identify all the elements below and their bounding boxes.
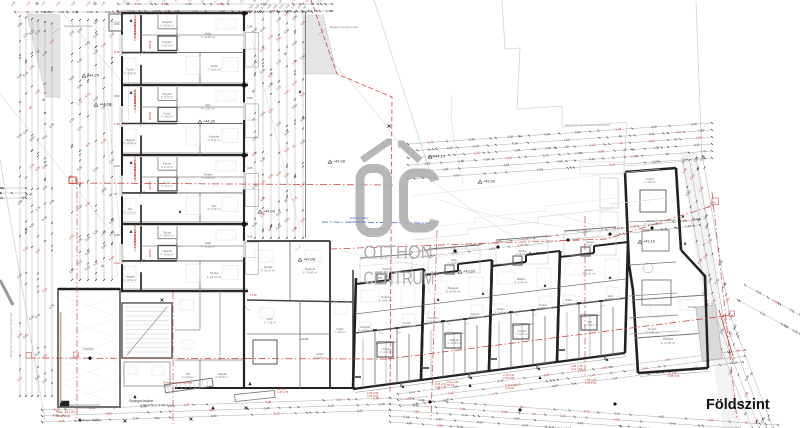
svg-text:1,85: 1,85 — [460, 407, 466, 411]
svg-text:1,38: 1,38 — [698, 128, 704, 132]
svg-text:5,40: 5,40 — [700, 149, 706, 153]
svg-text:3,25: 3,25 — [652, 159, 658, 163]
svg-text:3,11: 3,11 — [649, 132, 655, 136]
svg-text:F: 8,12 m²: F: 8,12 m² — [161, 44, 173, 47]
svg-text:4,52: 4,52 — [601, 365, 608, 370]
svg-text:2,98: 2,98 — [114, 233, 120, 237]
svg-text:1,20: 1,20 — [58, 10, 64, 14]
svg-text:F: 1,50 m²: F: 1,50 m² — [202, 107, 215, 111]
svg-text:1,05: 1,05 — [589, 373, 596, 378]
svg-text:2,10: 2,10 — [614, 411, 620, 415]
svg-text:30: 30 — [666, 152, 670, 156]
svg-text:0,30: 0,30 — [264, 406, 270, 410]
svg-text:3,25: 3,25 — [577, 421, 583, 425]
svg-text:F: 12,05 m²: F: 12,05 m² — [448, 262, 461, 265]
svg-text:0,30: 0,30 — [544, 132, 550, 136]
svg-text:0,45: 0,45 — [443, 398, 450, 403]
svg-text:+43,90: +43,90 — [483, 179, 496, 184]
svg-text:nyomvonala: nyomvonala — [350, 220, 365, 224]
svg-text:1,05: 1,05 — [514, 148, 520, 152]
svg-text:2,04: 2,04 — [114, 22, 120, 26]
svg-text:F: 5,40 m²: F: 5,40 m² — [583, 272, 596, 276]
svg-text:B: B — [714, 200, 716, 204]
svg-text:3,25: 3,25 — [448, 391, 455, 396]
svg-text:1,85: 1,85 — [418, 398, 424, 402]
svg-text:2,76: 2,76 — [427, 140, 433, 144]
svg-text:F: 12,05 m²: F: 12,05 m² — [201, 35, 215, 39]
svg-text:2,10 0,30: 2,10 0,30 — [133, 101, 137, 112]
svg-text:2,45: 2,45 — [436, 417, 442, 421]
svg-text:+44,28: +44,28 — [87, 73, 99, 78]
svg-text:3,60: 3,60 — [211, 414, 217, 418]
svg-text:F: 24,60 m²: F: 24,60 m² — [161, 253, 174, 256]
svg-text:90/240: 90/240 — [148, 249, 152, 258]
svg-text:F: 2,10 m²: F: 2,10 m² — [469, 316, 481, 319]
svg-text:F: 4,60 m²: F: 4,60 m² — [334, 331, 346, 334]
svg-text:6,15: 6,15 — [403, 415, 409, 419]
svg-text:30: 30 — [532, 412, 536, 416]
svg-text:F: 24,60 m²: F: 24,60 m² — [124, 279, 137, 282]
svg-text:F: 24,60 m²: F: 24,60 m² — [124, 142, 137, 145]
svg-text:0,90: 0,90 — [649, 139, 655, 143]
svg-text:kisfesz. kábel: kisfesz. kábel — [350, 216, 368, 220]
svg-text:1,38 30: 1,38 30 — [133, 173, 137, 182]
svg-text:1,50: 1,50 — [537, 167, 543, 171]
svg-text:1,50: 1,50 — [696, 135, 702, 139]
svg-text:0,30: 0,30 — [469, 137, 475, 141]
svg-text:5,40: 5,40 — [670, 421, 676, 425]
svg-text:0,30: 0,30 — [477, 420, 483, 424]
svg-text:4,52: 4,52 — [557, 159, 563, 163]
svg-text:1,05: 1,05 — [653, 145, 659, 149]
svg-text:1,85: 1,85 — [406, 421, 412, 425]
svg-text:2,04: 2,04 — [682, 157, 688, 161]
svg-text:3,25: 3,25 — [357, 409, 363, 413]
svg-text:90/240: 90/240 — [148, 40, 152, 49]
svg-text:6,15: 6,15 — [506, 156, 512, 160]
svg-text:F: 1,50 m²: F: 1,50 m² — [182, 376, 194, 379]
svg-text:F: 5,40 m²: F: 5,40 m² — [563, 301, 575, 305]
svg-text:2,04: 2,04 — [609, 162, 615, 166]
svg-text:CENTRUM: CENTRUM — [364, 269, 435, 289]
svg-text:45: 45 — [26, 10, 30, 14]
svg-text:0,45: 0,45 — [643, 229, 650, 234]
svg-text:+44,10: +44,10 — [433, 154, 446, 159]
svg-text:3,11 1,50: 3,11 1,50 — [571, 367, 583, 371]
svg-text:+43,60: +43,60 — [463, 269, 476, 274]
svg-text:OTTHON: OTTHON — [364, 243, 433, 263]
svg-text:2,76: 2,76 — [405, 396, 412, 401]
svg-text:2,10: 2,10 — [473, 144, 479, 148]
svg-text:F: 2,10 m²: F: 2,10 m² — [584, 244, 596, 247]
svg-text:90/240: 90/240 — [148, 181, 152, 190]
svg-text:F: 8,12 m²: F: 8,12 m² — [516, 333, 528, 336]
svg-text:F: 24,60 m²: F: 24,60 m² — [358, 328, 371, 332]
svg-text:F: 8,12 m²: F: 8,12 m² — [161, 95, 173, 99]
svg-text:1,05: 1,05 — [489, 246, 496, 251]
svg-text:F: 16,24 m²: F: 16,24 m² — [644, 222, 657, 226]
svg-text:+44,30: +44,30 — [203, 119, 216, 124]
svg-text:4,52: 4,52 — [503, 163, 509, 167]
svg-text:1,50: 1,50 — [518, 243, 525, 248]
svg-text:4,05: 4,05 — [552, 384, 559, 389]
svg-text:F: 4,60 m²: F: 4,60 m² — [208, 68, 221, 72]
svg-text:2,98: 2,98 — [501, 410, 507, 414]
svg-text:F: 1,50 m²: F: 1,50 m² — [124, 211, 136, 214]
svg-text:F: 4,60 m²: F: 4,60 m² — [124, 72, 136, 75]
svg-text:1,85: 1,85 — [458, 159, 464, 163]
svg-text:1,50: 1,50 — [413, 409, 419, 413]
svg-text:0,30: 0,30 — [598, 149, 604, 153]
svg-text:1,05: 1,05 — [545, 146, 551, 150]
svg-text:2,04: 2,04 — [247, 24, 253, 28]
svg-text:6,15 1,50: 6,15 1,50 — [585, 381, 597, 385]
svg-text:2,10: 2,10 — [685, 224, 692, 229]
svg-text:F: 1,50 m²: F: 1,50 m² — [584, 324, 596, 327]
svg-text:+44,08: +44,08 — [333, 159, 345, 164]
svg-text:5,40: 5,40 — [584, 409, 590, 413]
svg-text:90: 90 — [619, 134, 623, 138]
svg-text:F: 24,60 m²: F: 24,60 m² — [303, 271, 317, 275]
svg-text:F: 24,60 m²: F: 24,60 m² — [160, 23, 173, 27]
svg-text:F: 9,80 m²: F: 9,80 m² — [646, 331, 659, 335]
svg-text:0,45: 0,45 — [694, 143, 700, 147]
svg-text:4,52 90: 4,52 90 — [133, 32, 137, 41]
svg-text:0,30: 0,30 — [72, 10, 78, 14]
svg-text:F: 4,60 m²: F: 4,60 m² — [161, 116, 173, 119]
svg-text:2,76: 2,76 — [133, 416, 139, 420]
svg-text:Talajvonal: Talajvonal — [56, 414, 70, 418]
svg-text:Földszint: Földszint — [706, 397, 770, 413]
svg-text:4,05: 4,05 — [614, 417, 620, 421]
svg-text:6,15: 6,15 — [462, 413, 468, 417]
svg-text:2,10: 2,10 — [408, 390, 415, 395]
svg-text:F: 24,60 m²: F: 24,60 m² — [446, 290, 460, 294]
svg-text:2,98: 2,98 — [437, 423, 443, 427]
svg-text:3,11: 3,11 — [612, 376, 618, 381]
svg-text:F: 8,12 m²: F: 8,12 m² — [208, 138, 221, 142]
svg-text:2,10 1,85: 2,10 1,85 — [435, 385, 447, 389]
svg-text:F: 9,80 m²: F: 9,80 m² — [644, 181, 656, 184]
svg-text:F: 9,80 m²: F: 9,80 m² — [537, 307, 549, 310]
svg-text:4,05: 4,05 — [247, 166, 253, 170]
svg-text:1,05: 1,05 — [183, 403, 189, 407]
svg-text:2,98: 2,98 — [265, 400, 271, 404]
svg-text:2,10: 2,10 — [522, 423, 528, 427]
svg-text:90 30: 90 30 — [447, 383, 454, 387]
svg-text:Meglevő támfal vonala: Meglevő támfal vonala — [330, 25, 358, 29]
svg-text:F: 16,24 m²: F: 16,24 m² — [516, 253, 529, 256]
svg-text:1,85: 1,85 — [631, 154, 637, 158]
svg-text:+44,00: +44,00 — [263, 209, 276, 214]
svg-text:3,11: 3,11 — [336, 397, 342, 401]
svg-text:4,52 4,52: 4,52 4,52 — [133, 240, 137, 251]
svg-text:6,15: 6,15 — [326, 9, 332, 13]
svg-text:1,50: 1,50 — [680, 218, 687, 223]
svg-text:Terasz: Terasz — [688, 305, 697, 309]
svg-text:90: 90 — [565, 145, 569, 149]
svg-text:6,15: 6,15 — [328, 404, 334, 408]
svg-text:Gyalogos bejárat: Gyalogos bejárat — [78, 418, 102, 422]
svg-text:0,90: 0,90 — [247, 96, 253, 100]
svg-text:30: 30 — [674, 137, 678, 141]
svg-text:3,11: 3,11 — [676, 130, 682, 134]
svg-text:+43,10: +43,10 — [643, 239, 656, 244]
svg-text:F: 2,10 m²: F: 2,10 m² — [161, 165, 173, 169]
svg-text:4,52: 4,52 — [665, 357, 672, 362]
svg-text:+43,98: +43,98 — [303, 257, 315, 262]
svg-text:2,76: 2,76 — [474, 151, 480, 155]
svg-text:90/240: 90/240 — [148, 111, 152, 120]
svg-text:6,15: 6,15 — [274, 412, 280, 416]
svg-text:3,25: 3,25 — [87, 10, 93, 14]
svg-text:F: 8,12 m²: F: 8,12 m² — [427, 319, 439, 323]
svg-text:1,20: 1,20 — [507, 134, 513, 138]
svg-text:F: 1,50 m²: F: 1,50 m² — [208, 207, 221, 211]
svg-text:3,60: 3,60 — [615, 127, 621, 131]
svg-text:+43,95: +43,95 — [300, 337, 309, 341]
svg-text:F: 2,10 m²: F: 2,10 m² — [161, 185, 173, 188]
svg-text:3,25 30: 3,25 30 — [505, 386, 514, 390]
svg-text:3,25: 3,25 — [589, 143, 595, 147]
svg-text:3,25: 3,25 — [560, 414, 566, 418]
svg-text:6,15: 6,15 — [512, 141, 518, 145]
svg-text:F: 16,24 m²: F: 16,24 m² — [160, 234, 173, 238]
svg-text:F: 9,80 m²: F: 9,80 m² — [202, 176, 215, 180]
svg-text:2,76: 2,76 — [491, 391, 498, 396]
svg-text:3,60: 3,60 — [543, 373, 550, 378]
svg-text:30: 30 — [745, 421, 749, 425]
svg-text:+44,05: +44,05 — [99, 102, 111, 107]
svg-text:F: 17,85 m²: F: 17,85 m² — [661, 341, 675, 345]
svg-text:2,45 2,76: 2,45 2,76 — [277, 390, 289, 394]
svg-text:1,38: 1,38 — [630, 224, 637, 229]
svg-text:5,40: 5,40 — [41, 10, 47, 14]
svg-text:30: 30 — [114, 192, 118, 196]
svg-text:4,52: 4,52 — [454, 173, 460, 177]
svg-text:F: 24,60 m²: F: 24,60 m² — [216, 376, 229, 379]
svg-text:6,15: 6,15 — [447, 146, 453, 150]
svg-text:F: 7,25 m²: F: 7,25 m² — [605, 298, 617, 301]
svg-text:2,98 4,52: 2,98 4,52 — [367, 394, 379, 398]
svg-text:F: 9,80 m²: F: 9,80 m² — [379, 299, 392, 303]
svg-text:F: 12,05 m²: F: 12,05 m² — [201, 245, 215, 249]
svg-text:F: 5,40 m²: F: 5,40 m² — [515, 281, 528, 285]
svg-text:+43,40: +43,40 — [533, 251, 546, 256]
svg-text:Tervezett térkő burkolat: Tervezett térkő burkolat — [163, 381, 192, 385]
svg-text:3,60: 3,60 — [114, 94, 120, 98]
svg-text:1,05: 1,05 — [217, 2, 223, 6]
svg-text:4,52: 4,52 — [564, 138, 570, 142]
svg-text:Megjelölt szomszédos telekhatá: Megjelölt szomszédos telekhatár — [9, 313, 13, 358]
svg-text:2,76: 2,76 — [575, 151, 581, 155]
svg-text:0,90: 0,90 — [106, 411, 112, 415]
svg-text:F: 16,24 m²: F: 16,24 m² — [207, 275, 221, 279]
svg-text:F: 7,25 m²: F: 7,25 m² — [264, 320, 276, 324]
svg-text:Megjelölt szomszédos telekhatá: Megjelölt szomszédos telekhatár — [565, 123, 610, 127]
svg-text:3,25: 3,25 — [573, 237, 580, 242]
svg-text:0,45: 0,45 — [651, 125, 657, 129]
svg-text:0,45: 0,45 — [589, 157, 595, 161]
svg-text:1,38: 1,38 — [114, 122, 120, 126]
svg-text:F: 24,60 m²: F: 24,60 m² — [448, 342, 461, 345]
svg-text:17,85: 17,85 — [250, 293, 257, 297]
svg-text:1,20: 1,20 — [708, 418, 714, 422]
svg-text:F: 5,40 m²: F: 5,40 m² — [495, 310, 507, 314]
svg-text:2,04: 2,04 — [642, 366, 649, 371]
svg-text:4,05: 4,05 — [514, 416, 520, 420]
svg-text:45: 45 — [623, 148, 627, 152]
svg-text:4,52: 4,52 — [424, 161, 430, 165]
svg-text:6,15: 6,15 — [114, 50, 120, 54]
svg-text:Meglevő kerítés vonala: Meglevő kerítés vonala — [64, 24, 93, 28]
svg-text:2,10: 2,10 — [691, 122, 697, 126]
svg-text:F: 16,24 m²: F: 16,24 m² — [261, 269, 275, 273]
svg-text:0,62: 0,62 — [114, 261, 120, 265]
svg-text:4,05: 4,05 — [658, 415, 664, 419]
svg-text:1,85 2,98: 1,85 2,98 — [668, 374, 680, 378]
svg-text:1,85: 1,85 — [442, 167, 448, 171]
svg-text:F: 4,60 m²: F: 4,60 m² — [401, 325, 413, 328]
svg-text:1,20: 1,20 — [379, 402, 385, 406]
svg-text:Garázs: Garázs — [82, 347, 94, 351]
svg-text:6,15: 6,15 — [105, 10, 111, 14]
svg-text:4,05: 4,05 — [59, 419, 65, 423]
svg-text:2,10: 2,10 — [47, 10, 53, 14]
svg-text:3,25: 3,25 — [114, 164, 120, 168]
svg-text:1,85 2,98: 1,85 2,98 — [503, 376, 515, 380]
svg-text:1,38: 1,38 — [412, 401, 419, 406]
svg-text:(+76,07/5m= 4,03): (+76,07/5m= 4,03) — [140, 403, 165, 407]
svg-text:3,25: 3,25 — [247, 234, 253, 238]
svg-text:2,76: 2,76 — [543, 153, 549, 157]
svg-text:3,60: 3,60 — [575, 130, 581, 134]
svg-text:90: 90 — [619, 141, 623, 145]
svg-text:1,50: 1,50 — [484, 157, 490, 161]
